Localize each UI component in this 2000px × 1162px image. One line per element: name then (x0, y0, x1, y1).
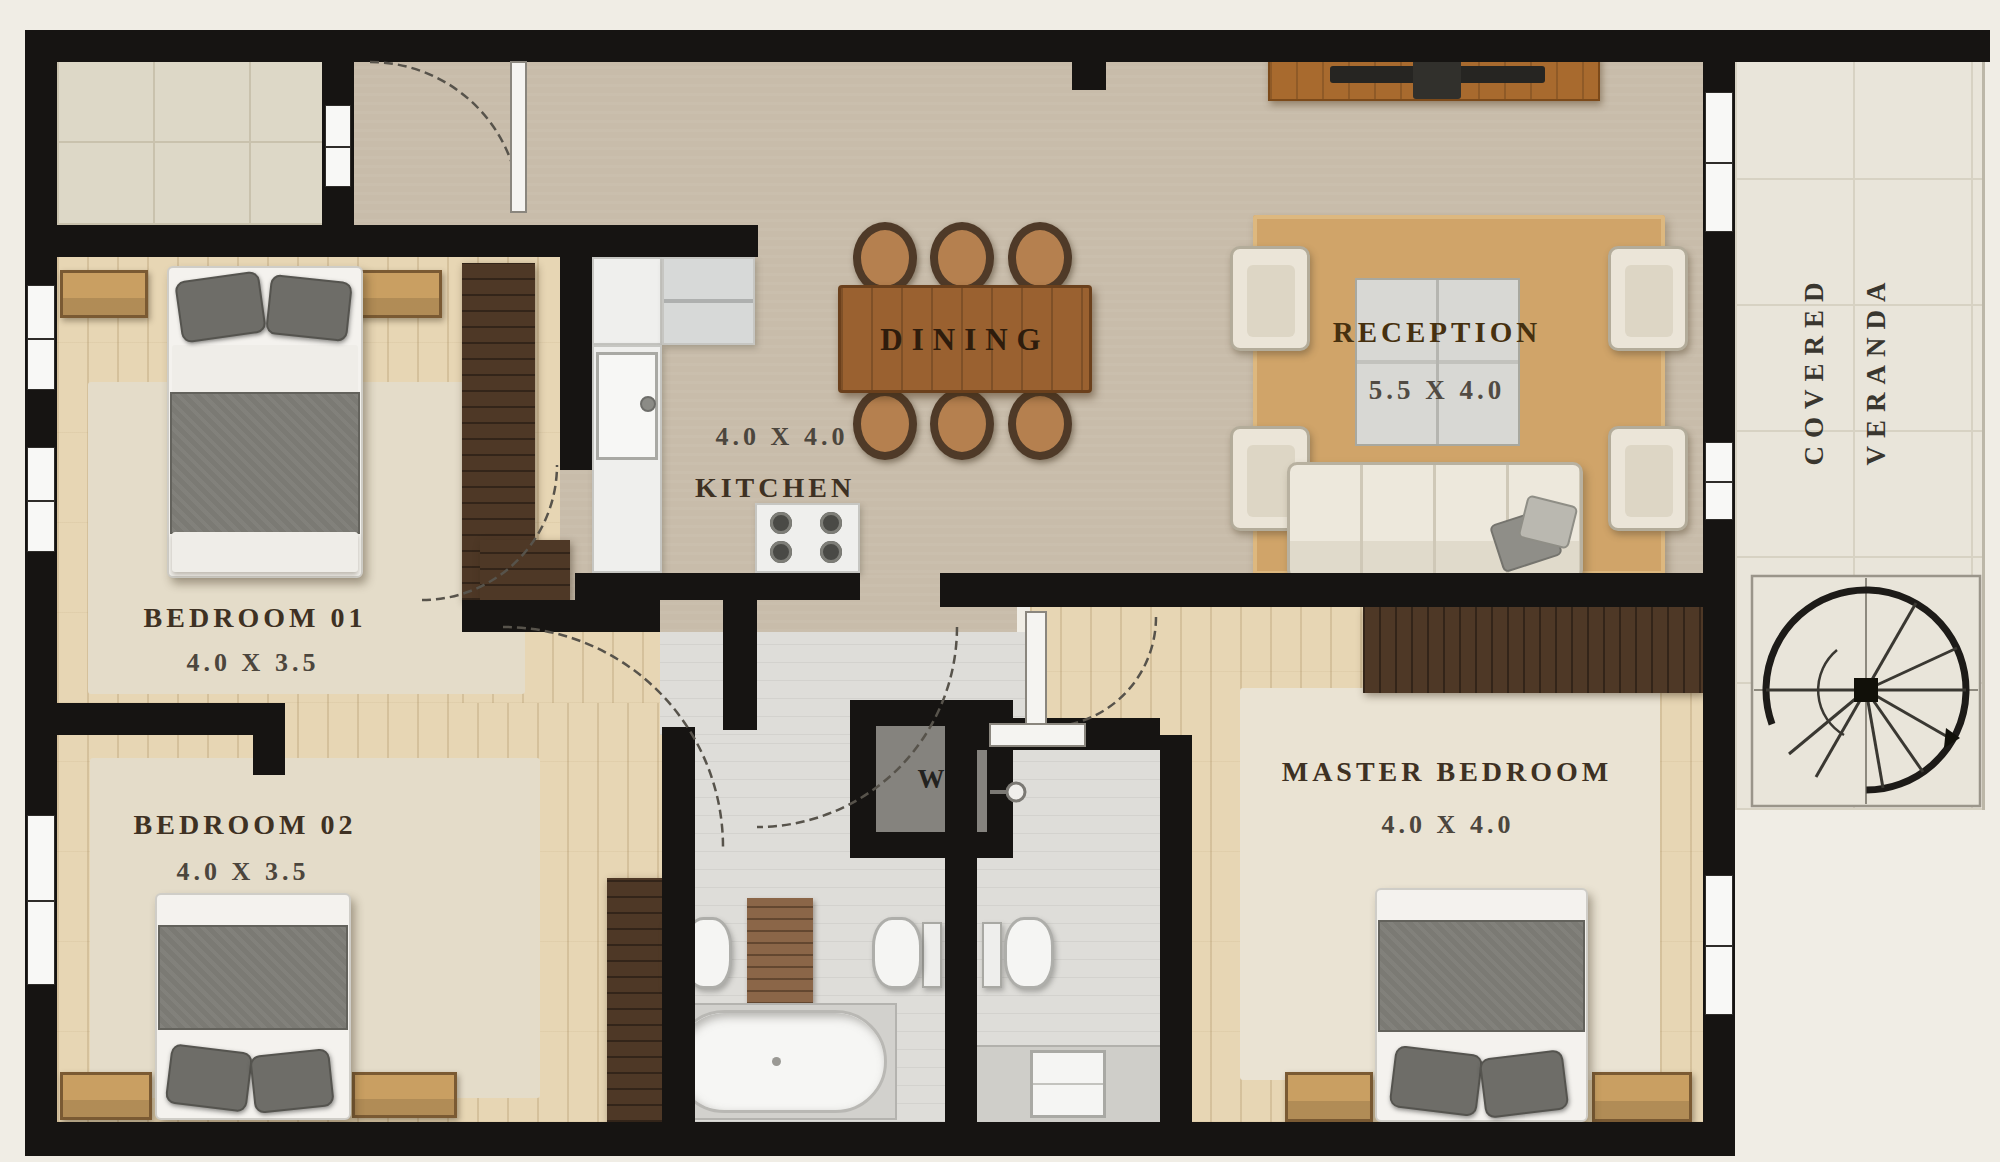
kitchen-fridge (662, 257, 755, 345)
ensuite-sink (1030, 1050, 1106, 1118)
wall-ensuite-top (945, 718, 1160, 750)
armchair-bottom-right (1608, 426, 1688, 531)
bathtub-drain-icon (772, 1057, 781, 1066)
kitchen-counter-top (592, 257, 662, 345)
bedroom2-dims-label: 4.0 X 3.5 (177, 857, 310, 887)
wall-divider-stub (253, 703, 285, 775)
bedroom2-pillow (249, 1048, 335, 1114)
bedroom2-pillow (165, 1043, 254, 1113)
reception-dims-label: 5.5 X 4.0 (1369, 375, 1506, 406)
dining-chair (930, 388, 994, 460)
wall-kitchen-bottom (575, 573, 860, 600)
master-blanket (1378, 920, 1585, 1032)
bedroom2-name-label: BEDROOM 02 (134, 809, 357, 841)
wall-top-stub (1072, 62, 1106, 90)
stove-burner (770, 512, 792, 534)
stove-burner (770, 541, 792, 563)
armchair-seat (1247, 265, 1295, 337)
dining-chair (1008, 388, 1072, 460)
tv-mount (1413, 57, 1461, 99)
laundry-label: W (918, 764, 945, 795)
master-name-label: MASTER BEDROOM (1282, 756, 1613, 788)
bedroom1-bed-sheet (172, 345, 358, 395)
armchair-seat (1625, 265, 1673, 337)
armchair-seat (1625, 445, 1673, 517)
stove-burner (820, 512, 842, 534)
stove-burner (820, 541, 842, 563)
wall-top (25, 30, 1990, 62)
wall-bedrooms-divider (25, 703, 285, 735)
wall-bathroom-left (662, 727, 695, 1122)
armchair-top-left (1230, 246, 1310, 351)
dining-chair (853, 388, 917, 460)
ensuite-toilet (1004, 917, 1054, 989)
wall-bath-ensuite (945, 750, 977, 1122)
dining-chair (1008, 222, 1072, 294)
bedroom1-name-label: BEDROOM 01 (144, 602, 367, 634)
coffee-table (1355, 278, 1520, 446)
wall-master-top (940, 573, 1703, 607)
master-pillow (1389, 1045, 1484, 1117)
veranda-label: COVERED VERANDA (1775, 210, 1915, 530)
wall-stub-hall (723, 600, 757, 730)
veranda-label-line1: COVERED (1783, 210, 1845, 530)
master-dims-label: 4.0 X 4.0 (1382, 810, 1515, 840)
wall-hall-bedroom2 (462, 600, 660, 632)
bedroom1-nightstand-left (60, 270, 148, 318)
entry-patio-floor (57, 62, 322, 225)
bedroom2-nightstand-right (352, 1072, 457, 1118)
window-bedroom1-b (27, 447, 55, 552)
master-nightstand-right (1592, 1072, 1692, 1122)
window-master (1705, 875, 1733, 1015)
window-reception (1705, 92, 1733, 232)
ensuite-toilet-tank (982, 922, 1002, 988)
bedroom1-bed-foot (172, 532, 358, 572)
wall-ensuite-right (1160, 735, 1192, 1122)
armchair-top-right (1608, 246, 1688, 351)
dining-chair (853, 222, 917, 294)
master-nightstand-left (1285, 1072, 1373, 1122)
bedroom1-nightstand-right (352, 270, 442, 318)
reception-name-label: RECEPTION (1333, 316, 1541, 349)
wall-bedroom1-top (25, 225, 758, 257)
window-reception-b (1705, 442, 1733, 520)
hall-closet (480, 540, 570, 602)
bedroom2-blanket (158, 925, 348, 1030)
bedroom2-wardrobe (607, 878, 662, 1122)
window-patio (325, 105, 351, 187)
window-bedroom2 (27, 815, 55, 985)
bathroom-toilet2-tank (922, 922, 942, 988)
bedroom2-nightstand-left (60, 1072, 152, 1120)
dining-chair (930, 222, 994, 294)
wall-bottom (25, 1122, 1735, 1156)
kitchen-stove (755, 503, 860, 573)
kitchen-name-label: KITCHEN (695, 472, 855, 504)
window-bedroom1-a (27, 285, 55, 390)
bedroom1-pillow (174, 270, 267, 343)
bathroom-toilet2 (872, 917, 922, 989)
wall-bedroom1-right (560, 257, 592, 470)
dining-name-label: DINING (880, 322, 1049, 358)
veranda-label-line2: VERANDA (1845, 210, 1907, 530)
master-pillow (1479, 1049, 1570, 1119)
wall-left (25, 30, 57, 1156)
bedroom1-pillow (265, 274, 353, 342)
bedroom1-blanket (170, 392, 360, 534)
bedroom1-dims-label: 4.0 X 3.5 (187, 648, 320, 678)
bath-mat (747, 898, 813, 1004)
kitchen-faucet-icon (640, 396, 656, 412)
master-wardrobe (1363, 607, 1703, 693)
floor-plan: BEDROOM 01 4.0 X 3.5 BEDROOM 02 4.0 X 3.… (0, 0, 2000, 1162)
kitchen-dims-label: 4.0 X 4.0 (716, 422, 849, 452)
